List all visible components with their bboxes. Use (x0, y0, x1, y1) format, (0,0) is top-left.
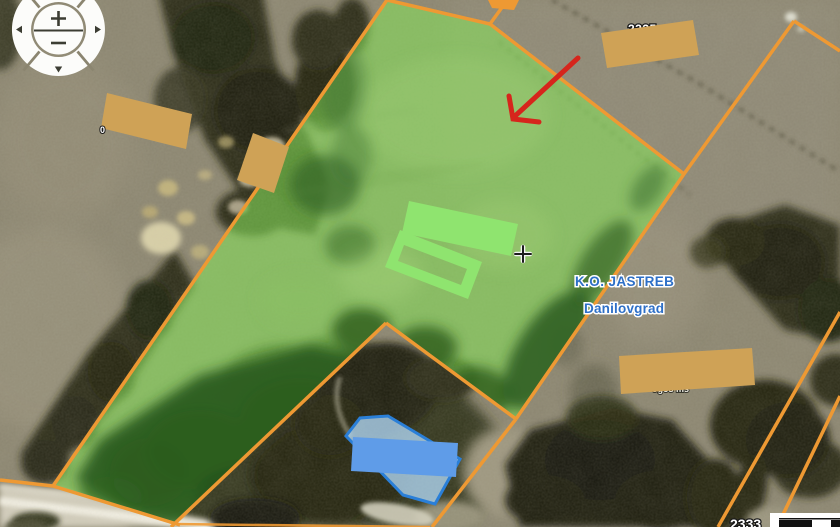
svg-text:0: 0 (100, 125, 105, 135)
svg-text:2333: 2333 (730, 516, 761, 527)
svg-text:Danilovgrad: Danilovgrad (584, 301, 664, 316)
svg-text:K.O. JASTREB: K.O. JASTREB (575, 274, 674, 289)
